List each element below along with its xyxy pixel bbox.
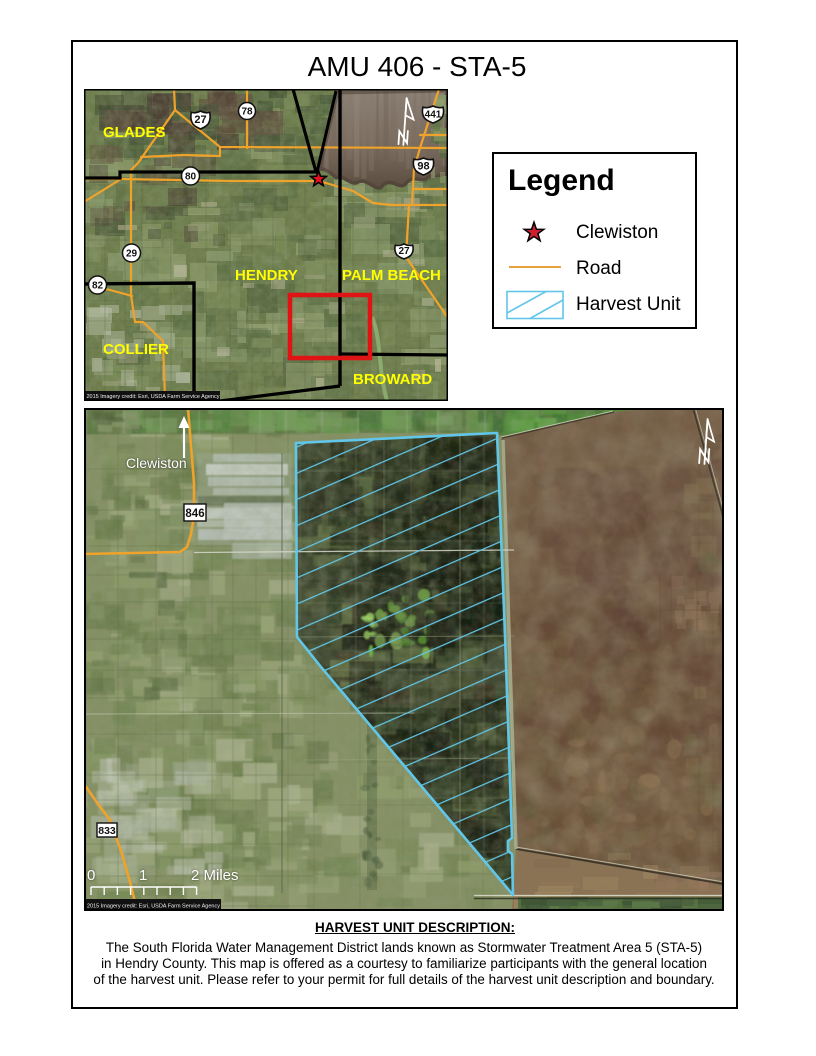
svg-text:BROWARD: BROWARD [353, 371, 432, 388]
svg-text:1: 1 [139, 867, 147, 884]
svg-text:98: 98 [417, 161, 429, 173]
svg-text:0: 0 [87, 867, 95, 884]
svg-text:GLADES: GLADES [103, 124, 166, 141]
svg-text:HENDRY: HENDRY [235, 267, 298, 284]
svg-text:Clewiston: Clewiston [126, 455, 187, 471]
svg-text:78: 78 [241, 107, 253, 118]
svg-text:PALM BEACH: PALM BEACH [342, 267, 441, 284]
svg-text:29: 29 [126, 249, 138, 260]
svg-text:2015 Imagery credit: Esri, USD: 2015 Imagery credit: Esri, USDA Farm Ser… [87, 394, 220, 400]
svg-text:2015 Imagery credit: Esri, USD: 2015 Imagery credit: Esri, USDA Farm Ser… [87, 904, 220, 910]
svg-text:27: 27 [194, 114, 206, 126]
svg-text:80: 80 [185, 172, 197, 183]
svg-text:COLLIER: COLLIER [103, 341, 169, 358]
svg-text:82: 82 [92, 281, 104, 292]
svg-text:846: 846 [185, 508, 204, 520]
svg-text:27: 27 [398, 246, 410, 257]
svg-text:2 Miles: 2 Miles [191, 867, 239, 884]
svg-text:833: 833 [98, 825, 116, 837]
svg-text:441: 441 [425, 110, 442, 121]
